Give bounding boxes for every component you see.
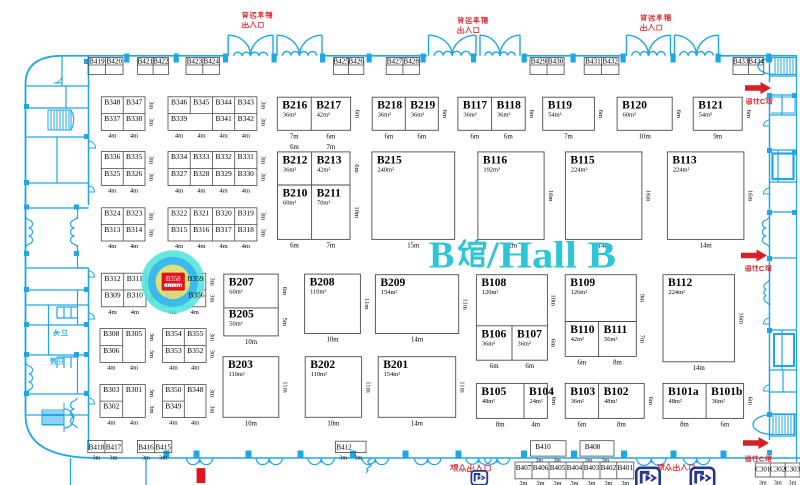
svg-text:B327: B327 [171,169,188,178]
svg-text:15m: 15m [407,242,420,249]
svg-text:B311: B311 [127,274,143,283]
svg-text:B357: B357 [165,290,182,299]
svg-text:14m: 14m [411,420,424,427]
svg-text:B101a: B101a [668,386,699,398]
svg-text:3m: 3m [209,405,216,414]
svg-text:B201: B201 [383,359,408,371]
svg-text:9m: 9m [713,133,722,140]
svg-text:B425: B425 [333,58,349,66]
svg-text:3m: 3m [354,454,362,461]
svg-text:B203: B203 [228,359,253,371]
svg-text:36m²: 36m² [283,112,296,119]
svg-text:3m: 3m [259,228,266,237]
svg-text:3m: 3m [536,457,544,463]
svg-text:4m: 4m [191,420,200,427]
svg-text:B310: B310 [127,291,144,300]
svg-text:B212: B212 [283,154,308,166]
svg-text:8m: 8m [680,421,689,428]
svg-text:36m²: 36m² [571,398,584,405]
svg-text:7m: 7m [290,133,299,140]
svg-text:42m²: 42m² [317,166,330,173]
svg-text:6m: 6m [384,133,393,140]
svg-text:14m: 14m [700,242,713,249]
svg-text:B338: B338 [126,114,143,123]
svg-text:48m²: 48m² [669,398,682,405]
svg-text:C302: C302 [770,465,786,473]
svg-text:B313: B313 [104,225,121,234]
svg-text:B218: B218 [377,100,402,112]
svg-text:B407: B407 [516,464,532,472]
svg-text:36m²: 36m² [378,112,391,119]
svg-text:4m: 4m [108,188,117,195]
svg-text:6m: 6m [470,133,479,140]
svg-text:B302: B302 [103,402,120,411]
svg-text:4m: 4m [197,188,206,195]
svg-text:7m: 7m [326,144,335,151]
svg-text:6m: 6m [490,363,499,370]
svg-text:36m²: 36m² [283,166,296,173]
svg-text:6m: 6m [504,133,513,140]
svg-text:36m²: 36m² [518,340,531,347]
svg-text:9m: 9m [638,294,645,303]
svg-text:16m: 16m [737,312,744,325]
svg-text:56m²: 56m² [604,336,617,343]
svg-text:B108: B108 [481,277,506,289]
svg-text:110m²: 110m² [311,371,327,378]
svg-text:11m: 11m [282,381,289,393]
svg-text:B316: B316 [193,225,210,234]
svg-text:4m: 4m [130,365,139,372]
svg-text:B301: B301 [126,385,143,394]
svg-text:B341: B341 [215,114,232,123]
svg-text:4m: 4m [219,188,228,195]
svg-text:6m: 6m [746,397,753,406]
svg-text:6m: 6m [578,359,587,366]
svg-text:8m: 8m [617,421,626,428]
svg-text:50m²: 50m² [229,320,242,327]
svg-text:B427: B427 [387,58,403,66]
svg-text:154m²: 154m² [381,289,398,296]
svg-text:3m: 3m [148,389,155,398]
svg-text:B120: B120 [622,100,647,112]
svg-text:B335: B335 [126,152,143,161]
svg-text:4m: 4m [242,243,251,250]
svg-text:B330: B330 [238,169,255,178]
svg-text:4m: 4m [130,243,139,250]
svg-text:3m: 3m [554,457,562,463]
svg-text:3m: 3m [209,350,216,359]
svg-text:B219: B219 [410,100,435,112]
svg-text:14m: 14m [693,365,706,372]
svg-text:B432: B432 [602,58,618,66]
svg-text:3m: 3m [259,173,266,182]
svg-text:6m: 6m [578,421,587,428]
svg-text:B312: B312 [104,274,121,283]
svg-text:C: C [760,97,766,106]
svg-text:4m: 4m [108,133,117,140]
svg-text:B434: B434 [748,58,764,66]
svg-text:3m: 3m [148,118,155,127]
svg-text:48m²: 48m² [604,398,617,405]
svg-text:4m: 4m [131,309,140,316]
svg-text:6m: 6m [745,110,752,119]
svg-text:B121: B121 [698,100,723,112]
svg-text:3m: 3m [208,294,215,303]
svg-text:B410: B410 [535,443,551,451]
svg-text:11m: 11m [459,381,466,393]
svg-text:48m²: 48m² [482,398,495,405]
svg-text:4m: 4m [197,243,206,250]
svg-text:B209: B209 [380,277,405,289]
svg-text:54m²: 54m² [548,112,561,119]
svg-text:70m²: 70m² [317,200,330,207]
svg-text:240m²: 240m² [377,166,394,173]
svg-text:6m: 6m [549,339,556,348]
svg-text:3m: 3m [148,333,155,342]
svg-text:B421: B421 [138,58,154,66]
svg-text:B423: B423 [187,58,203,66]
svg-text:3m: 3m [789,480,797,485]
svg-text:6m: 6m [281,287,288,296]
svg-text:10m: 10m [327,420,340,427]
svg-text:B417: B417 [106,443,122,451]
svg-text:B430: B430 [548,58,564,66]
svg-text:36m²: 36m² [712,398,725,405]
svg-text:3m: 3m [148,173,155,182]
svg-text:B433: B433 [733,58,749,66]
svg-text:4m: 4m [197,133,206,140]
svg-text:B107: B107 [517,328,542,340]
svg-text:10m: 10m [245,339,258,346]
svg-text:B406: B406 [533,464,549,472]
svg-text:B347: B347 [126,97,143,106]
svg-text:B429: B429 [531,58,547,66]
svg-text:4m: 4m [175,133,184,140]
svg-text:B404: B404 [567,464,583,472]
svg-text:B205: B205 [229,308,254,320]
svg-text:B105: B105 [481,386,506,398]
svg-text:B118: B118 [497,100,522,112]
svg-text:110m²: 110m² [310,289,326,296]
svg-text:8m: 8m [613,359,622,366]
svg-text:16m: 16m [747,190,754,203]
svg-text:60m²: 60m² [283,200,296,207]
svg-text:11m: 11m [364,381,371,393]
svg-text:4m: 4m [242,133,251,140]
svg-text:3m: 3m [209,389,216,398]
svg-text:B101b: B101b [711,386,742,398]
svg-text:6m: 6m [353,110,360,119]
svg-text:3m: 3m [208,277,215,286]
svg-text:16m: 16m [547,190,554,203]
svg-text:7m: 7m [326,242,335,249]
svg-text:B348: B348 [104,97,121,106]
svg-text:6m: 6m [675,110,682,119]
svg-text:4m: 4m [107,420,116,427]
svg-text:B322: B322 [171,208,188,217]
svg-text:B320: B320 [215,208,232,217]
svg-text:36m²: 36m² [497,112,510,119]
svg-text:B116: B116 [483,154,508,166]
svg-text:B111: B111 [604,324,628,336]
svg-text:11m: 11m [363,298,370,310]
svg-text:3m: 3m [339,454,347,461]
svg-text:3m: 3m [774,480,782,485]
svg-text:224m²: 224m² [673,166,690,173]
svg-text:6m: 6m [550,397,557,406]
svg-text:B346: B346 [171,97,188,106]
svg-text:B353: B353 [165,346,182,355]
svg-text:36m²: 36m² [411,112,424,119]
svg-text:B202: B202 [310,359,335,371]
svg-text:6m: 6m [353,164,360,173]
svg-text:B308: B308 [103,329,120,338]
svg-text:36m²: 36m² [463,112,476,119]
svg-text:B213: B213 [317,154,342,166]
svg-text:B303: B303 [103,385,120,394]
svg-text:B408: B408 [585,443,601,451]
svg-text:3m: 3m [602,457,610,463]
svg-text:B336: B336 [104,152,121,161]
svg-text:3m: 3m [520,480,528,485]
svg-text:B345: B345 [193,97,210,106]
svg-text:3m: 3m [537,480,545,485]
svg-text:3m: 3m [759,480,767,485]
svg-text:B317: B317 [215,225,232,234]
svg-text:B324: B324 [104,208,121,217]
svg-text:B332: B332 [215,152,232,161]
svg-text:36m²: 36m² [482,340,495,347]
svg-text:B342: B342 [238,114,255,123]
svg-text:10m: 10m [245,420,258,427]
svg-text:B215: B215 [377,154,402,166]
svg-text:/Hall B: /Hall B [486,235,616,277]
svg-text:B314: B314 [126,225,143,234]
svg-text:3m: 3m [259,156,266,165]
svg-text:B113: B113 [672,154,697,166]
svg-text:3m: 3m [259,101,266,110]
svg-text:3m: 3m [92,454,100,461]
svg-text:B323: B323 [126,208,143,217]
svg-text:B415: B415 [155,443,171,451]
svg-text:B334: B334 [171,152,188,161]
svg-text:B412: B412 [336,443,352,451]
svg-text:4m: 4m [130,133,139,140]
svg-text:B419: B419 [89,58,105,66]
svg-text:60m²: 60m² [623,112,636,119]
svg-text:4m: 4m [169,365,178,372]
svg-text:B106: B106 [481,328,506,340]
svg-text:224m²: 224m² [669,289,686,296]
svg-text:6m: 6m [528,110,535,119]
svg-text:B403: B403 [584,464,600,472]
svg-text:B210: B210 [283,188,308,200]
svg-text:10m: 10m [549,294,556,307]
svg-text:154m²: 154m² [384,371,401,378]
svg-text:4m: 4m [219,133,228,140]
svg-text:11m: 11m [462,298,469,310]
svg-text:B103: B103 [570,386,595,398]
svg-text:4m: 4m [175,243,184,250]
svg-text:B112: B112 [668,277,693,289]
svg-text:224m²: 224m² [571,166,588,173]
svg-text:B348: B348 [187,385,204,394]
svg-text:B319: B319 [238,208,255,217]
svg-text:16m: 16m [645,190,652,203]
svg-text:4m: 4m [130,420,139,427]
svg-text:B102: B102 [604,386,629,398]
svg-text:B356: B356 [188,290,205,299]
svg-text:B208: B208 [310,277,335,289]
svg-text:B309: B309 [104,291,121,300]
svg-text:8m: 8m [496,421,505,428]
svg-text:B355: B355 [187,329,204,338]
svg-text:B349: B349 [165,402,182,411]
svg-text:3m: 3m [148,228,155,237]
svg-text:6m: 6m [441,110,448,119]
svg-text:B110: B110 [570,324,595,336]
svg-text:192m²: 192m² [483,166,500,173]
svg-text:10m: 10m [326,337,339,344]
svg-text:3m: 3m [148,101,155,110]
svg-text:6m: 6m [290,242,299,249]
svg-text:B211: B211 [317,188,342,200]
svg-text:6m: 6m [597,110,604,119]
svg-text:3m: 3m [148,405,155,414]
svg-text:7m: 7m [638,335,645,344]
svg-text:B359: B359 [187,274,204,283]
svg-text:3m: 3m [571,480,579,485]
svg-text:B109: B109 [570,277,595,289]
svg-text:3m: 3m [621,480,629,485]
svg-text:B207: B207 [229,277,254,289]
svg-text:B119: B119 [548,100,573,112]
svg-text:6m: 6m [525,363,534,370]
svg-text:3m: 3m [604,480,612,485]
svg-text:3m: 3m [159,454,167,461]
svg-text:10m: 10m [353,206,360,219]
svg-text:3m: 3m [148,156,155,165]
svg-text:C303: C303 [785,465,800,473]
svg-text:B: B [429,235,454,277]
svg-text:B315: B315 [171,225,188,234]
svg-text:B343: B343 [238,97,255,106]
svg-text:4m: 4m [108,243,117,250]
svg-text:3m: 3m [259,212,266,221]
svg-text:B325: B325 [104,169,121,178]
svg-text:B420: B420 [107,58,123,66]
svg-text:42m²: 42m² [317,112,330,119]
svg-text:4m: 4m [190,309,199,316]
svg-text:4m: 4m [130,188,139,195]
svg-text:B117: B117 [463,100,488,112]
svg-text:3m: 3m [148,212,155,221]
svg-text:4m: 4m [107,365,116,372]
svg-text:B318: B318 [238,225,255,234]
svg-text:B115: B115 [570,154,595,166]
svg-text:6m: 6m [417,133,426,140]
svg-text:6m: 6m [647,397,654,406]
svg-text:4m: 4m [219,243,228,250]
svg-text:5m: 5m [281,318,288,327]
svg-text:54m²: 54m² [699,112,712,119]
svg-text:B331: B331 [238,152,255,161]
svg-text:B339: B339 [171,114,188,123]
svg-text:6m: 6m [327,133,336,140]
svg-text:4m: 4m [242,188,251,195]
svg-text:3m: 3m [148,350,155,359]
svg-text:B305: B305 [126,329,143,338]
svg-text:3m: 3m [142,454,150,461]
svg-text:3m: 3m [110,454,118,461]
svg-text:4m: 4m [191,365,200,372]
svg-text:60m²: 60m² [229,289,242,296]
svg-text:4m: 4m [108,309,117,316]
svg-text:24m²: 24m² [530,398,543,405]
svg-text:B333: B333 [193,152,210,161]
svg-text:4m: 4m [169,420,178,427]
svg-text:B416: B416 [138,443,154,451]
svg-text:C: C [759,455,765,464]
svg-text:B426: B426 [348,58,364,66]
svg-text:B217: B217 [316,100,341,112]
svg-text:B354: B354 [165,329,182,338]
svg-text:4m: 4m [531,421,540,428]
svg-text:B321: B321 [193,208,210,217]
svg-text:C301: C301 [755,465,771,473]
svg-text:B326: B326 [126,169,143,178]
svg-text:3m: 3m [259,118,266,127]
svg-text:42m²: 42m² [571,336,584,343]
svg-text:B405: B405 [550,464,566,472]
svg-text:126m²: 126m² [571,289,588,296]
svg-text:110m²: 110m² [229,371,245,378]
svg-text:B422: B422 [153,58,169,66]
svg-text:3m: 3m [554,480,562,485]
svg-text:B344: B344 [215,97,232,106]
svg-text:7m: 7m [564,133,573,140]
svg-text:B329: B329 [215,169,232,178]
svg-text:10m: 10m [639,133,652,140]
svg-text:B418: B418 [89,443,105,451]
svg-text:B424: B424 [203,58,219,66]
svg-text:B306: B306 [103,346,120,355]
svg-text:3m: 3m [588,480,596,485]
svg-text:B358: B358 [166,276,181,283]
svg-text:B431: B431 [585,58,601,66]
svg-text:B402: B402 [601,464,617,472]
svg-text:B337: B337 [104,114,121,123]
svg-text:B350: B350 [165,385,182,394]
svg-text:B401: B401 [618,464,634,472]
svg-text:4m: 4m [175,188,184,195]
svg-text:B216: B216 [282,100,307,112]
svg-text:C: C [759,264,765,273]
svg-text:6m: 6m [721,421,730,428]
svg-text:B328: B328 [193,169,210,178]
svg-text:6m: 6m [290,144,299,151]
svg-text:120m²: 120m² [482,289,499,296]
svg-text:3m: 3m [209,333,216,342]
svg-text:B428: B428 [403,58,419,66]
svg-text:14m: 14m [411,337,424,344]
svg-text:B352: B352 [187,346,204,355]
svg-text:3m: 3m [585,457,593,463]
